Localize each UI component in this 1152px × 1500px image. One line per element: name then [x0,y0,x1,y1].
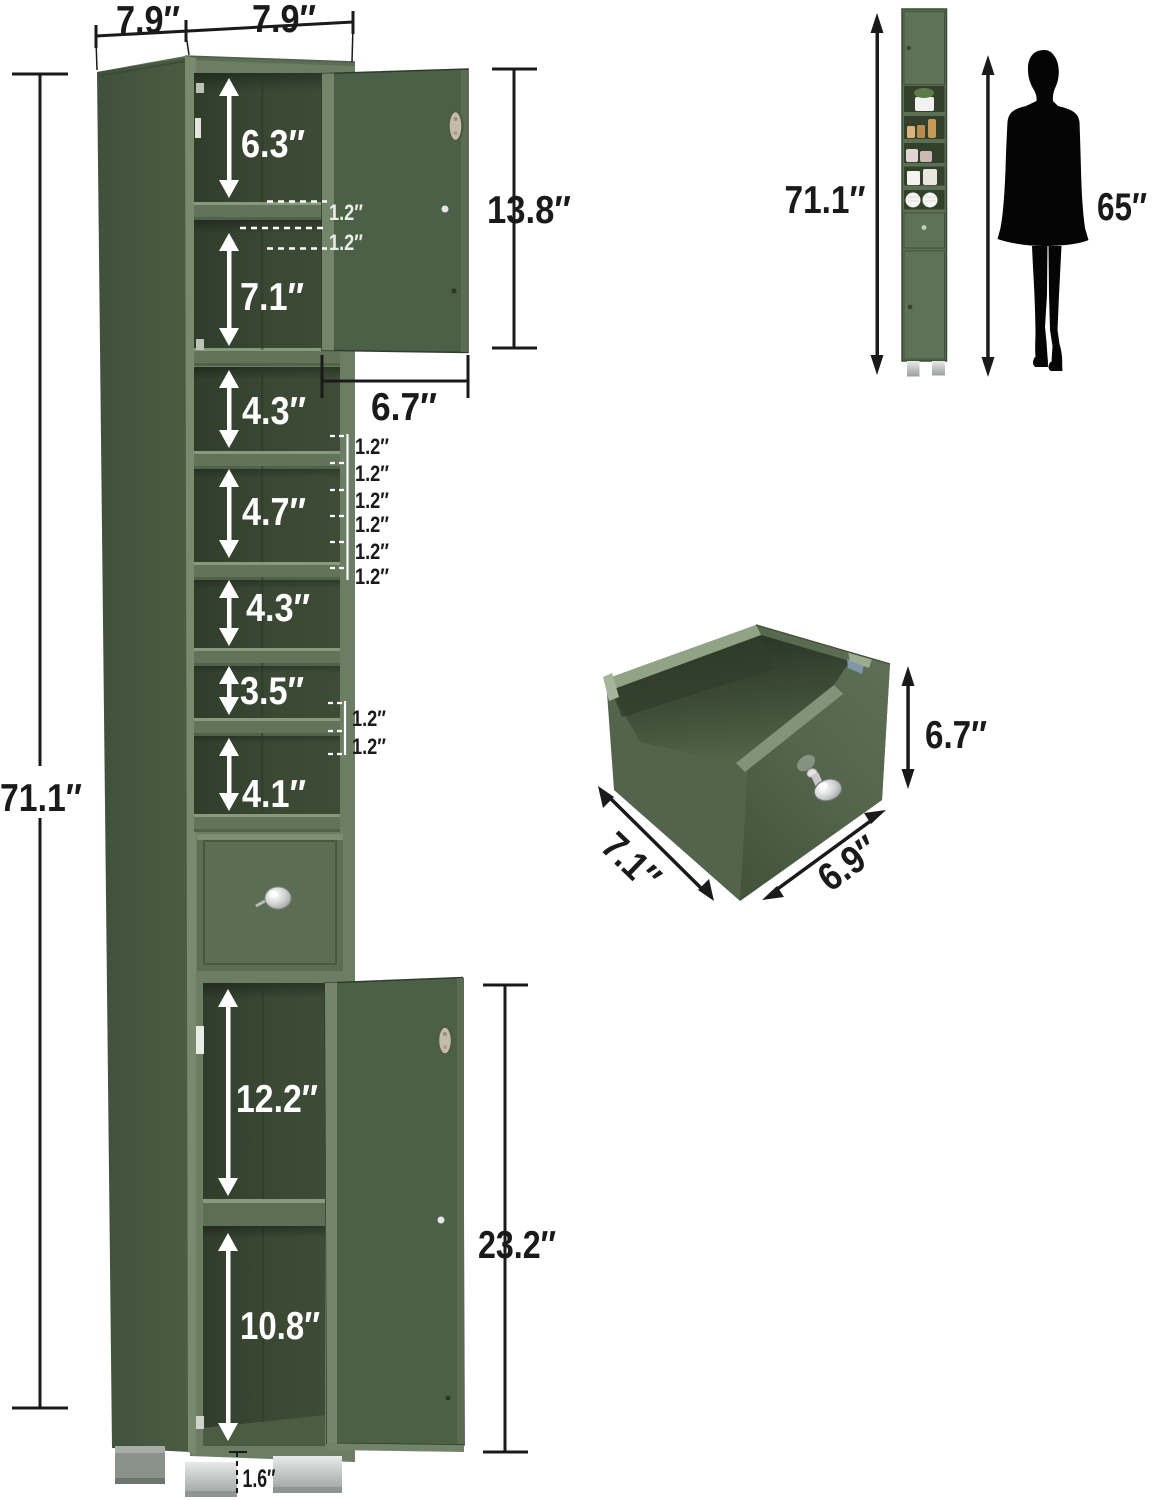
svg-text:6.7″: 6.7″ [371,386,437,429]
svg-text:71.1″: 71.1″ [785,179,866,222]
svg-text:1.2″: 1.2″ [355,488,389,513]
svg-text:1.6″: 1.6″ [243,1465,276,1493]
svg-text:4.3″: 4.3″ [242,390,306,433]
svg-text:1.2″: 1.2″ [355,539,389,564]
svg-text:1.2″: 1.2″ [329,200,363,225]
svg-text:1.2″: 1.2″ [355,564,389,589]
svg-text:1.2″: 1.2″ [355,434,389,459]
svg-text:7.1″: 7.1″ [240,276,304,319]
svg-text:4.7″: 4.7″ [242,491,306,534]
svg-text:6.7″: 6.7″ [925,714,987,757]
svg-text:12.2″: 12.2″ [236,1078,318,1121]
svg-text:7.9″: 7.9″ [116,0,180,42]
svg-text:71.1″: 71.1″ [0,777,82,820]
svg-text:4.1″: 4.1″ [242,773,306,816]
svg-text:1.2″: 1.2″ [352,734,386,759]
svg-text:13.8″: 13.8″ [487,189,571,232]
svg-text:1.2″: 1.2″ [355,461,389,486]
svg-text:65″: 65″ [1097,186,1147,229]
svg-text:1.2″: 1.2″ [352,706,386,731]
svg-text:23.2″: 23.2″ [478,1224,556,1267]
svg-text:1.2″: 1.2″ [329,230,363,255]
svg-text:4.3″: 4.3″ [246,587,310,630]
svg-text:7.9″: 7.9″ [252,0,316,41]
svg-text:6.3″: 6.3″ [241,123,305,166]
svg-text:1.2″: 1.2″ [355,512,389,537]
svg-text:3.5″: 3.5″ [240,670,304,713]
svg-text:10.8″: 10.8″ [240,1305,320,1348]
